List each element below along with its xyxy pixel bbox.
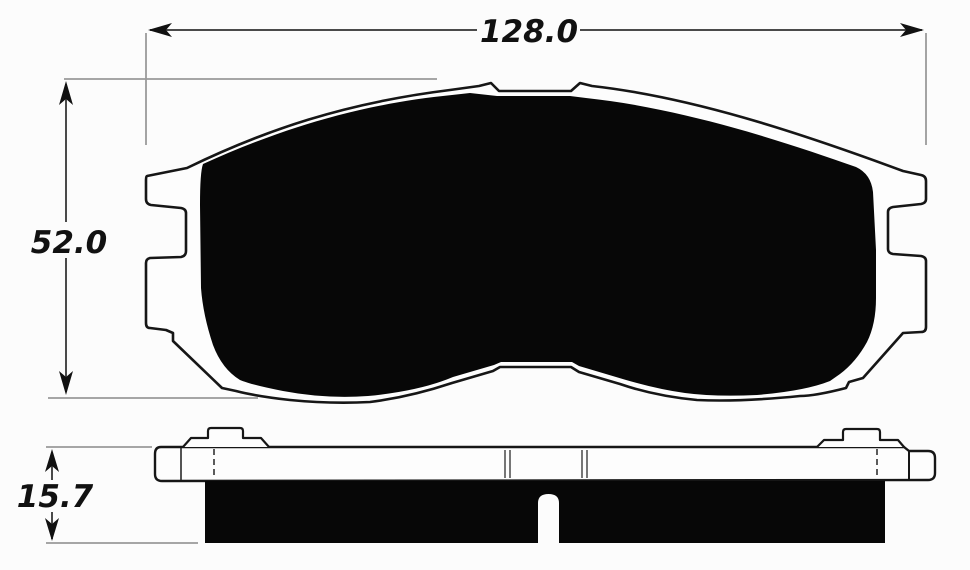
backing-plate-side: [155, 447, 935, 481]
brake-pad-technical-drawing: 128.0 52.0 15.7: [0, 0, 970, 570]
drawing-page: 128.0 52.0 15.7: [0, 0, 970, 570]
thickness-dimension-label: 15.7: [17, 479, 94, 515]
width-dimension-label: 128.0: [480, 14, 578, 50]
height-dimension-label: 52.0: [31, 225, 108, 261]
